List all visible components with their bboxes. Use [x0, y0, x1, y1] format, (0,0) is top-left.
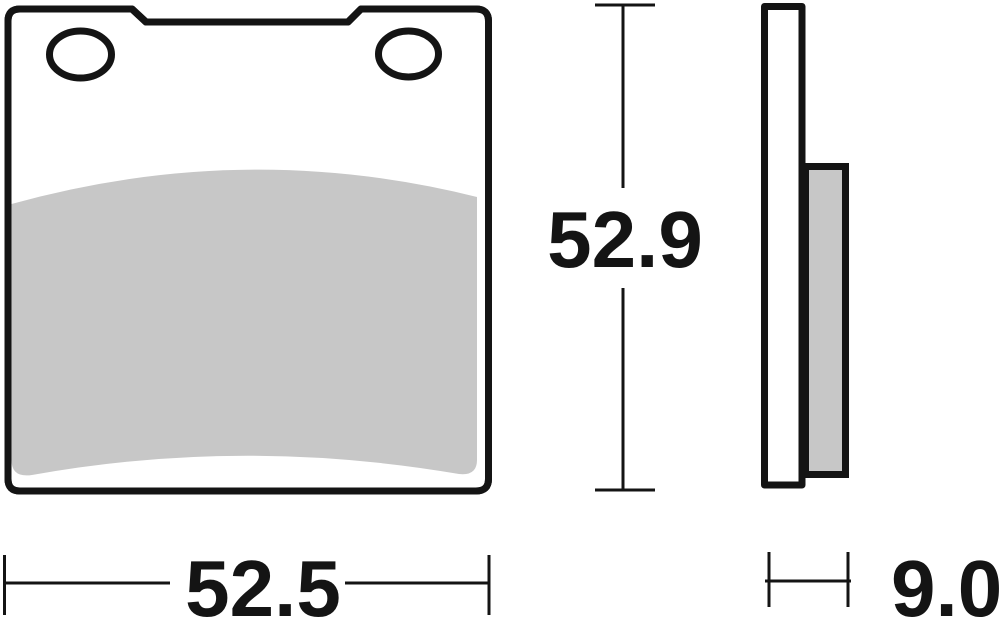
front-view [8, 9, 489, 491]
mounting-hole-right-icon [379, 31, 439, 77]
height-dimension: 52.9 [547, 5, 703, 490]
side-view [765, 7, 846, 486]
thickness-dim-value: 9.0 [891, 544, 1000, 618]
thickness-dimension: 9.0 [765, 544, 1000, 618]
backplate-side-profile [765, 7, 803, 486]
width-dimension: 52.5 [5, 544, 490, 618]
mounting-hole-left-icon [50, 31, 112, 78]
brake-pad-technical-drawing: 52.9 52.5 9.0 [0, 0, 1000, 618]
technical-drawing-canvas: 52.9 52.5 9.0 [0, 0, 1000, 618]
width-dim-value: 52.5 [185, 544, 341, 618]
height-dim-value: 52.9 [547, 195, 703, 284]
friction-pad-front [12, 170, 478, 476]
friction-pad-side-profile [806, 167, 846, 475]
